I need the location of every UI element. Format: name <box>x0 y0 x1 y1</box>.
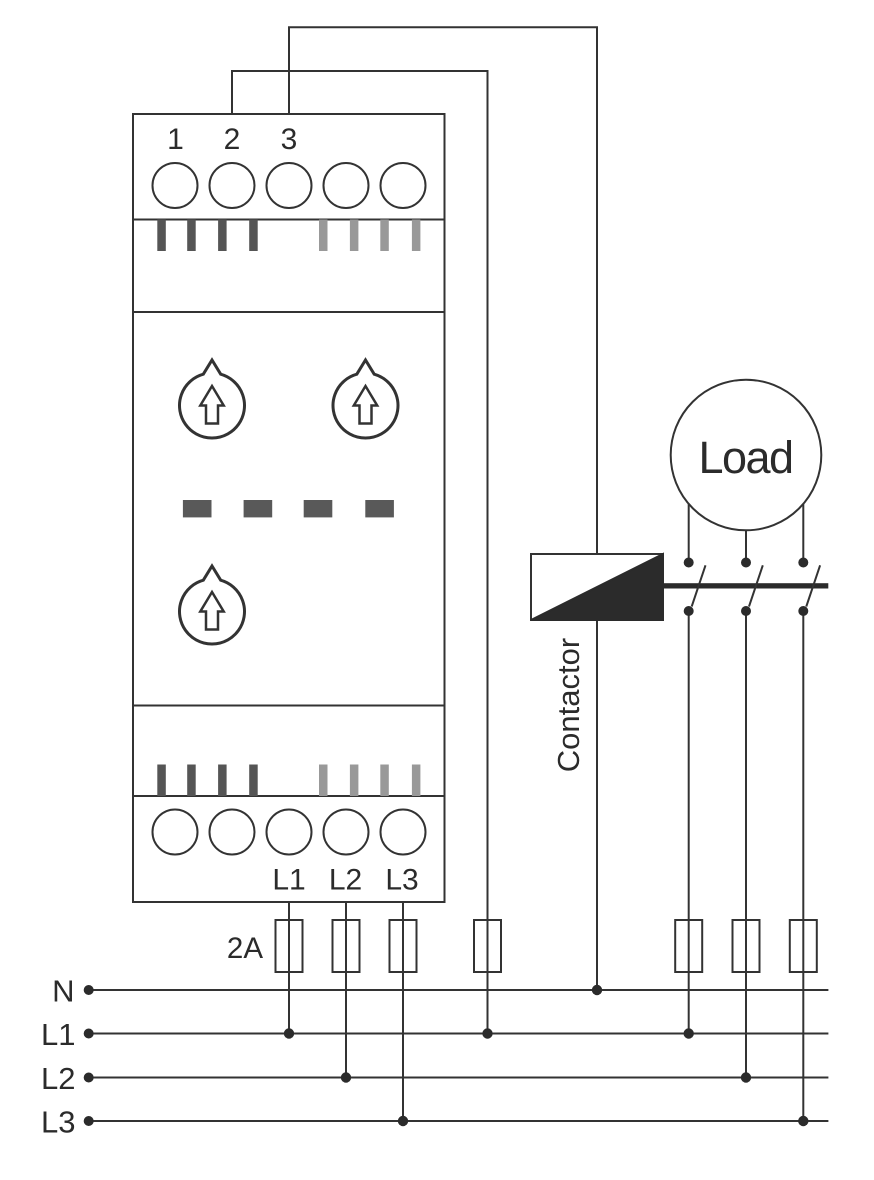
svg-text:2A: 2A <box>227 932 263 965</box>
svg-text:L3: L3 <box>385 864 418 897</box>
svg-text:1: 1 <box>167 123 184 156</box>
svg-text:L3: L3 <box>41 1105 75 1140</box>
svg-text:Contactor: Contactor <box>551 638 586 772</box>
svg-text:L1: L1 <box>272 864 305 897</box>
svg-text:L2: L2 <box>329 864 362 897</box>
svg-text:2: 2 <box>224 123 241 156</box>
svg-text:N: N <box>52 974 74 1009</box>
svg-text:L2: L2 <box>41 1061 75 1096</box>
svg-text:3: 3 <box>281 123 298 156</box>
svg-text:L1: L1 <box>41 1017 75 1052</box>
svg-text:Load: Load <box>698 432 792 483</box>
